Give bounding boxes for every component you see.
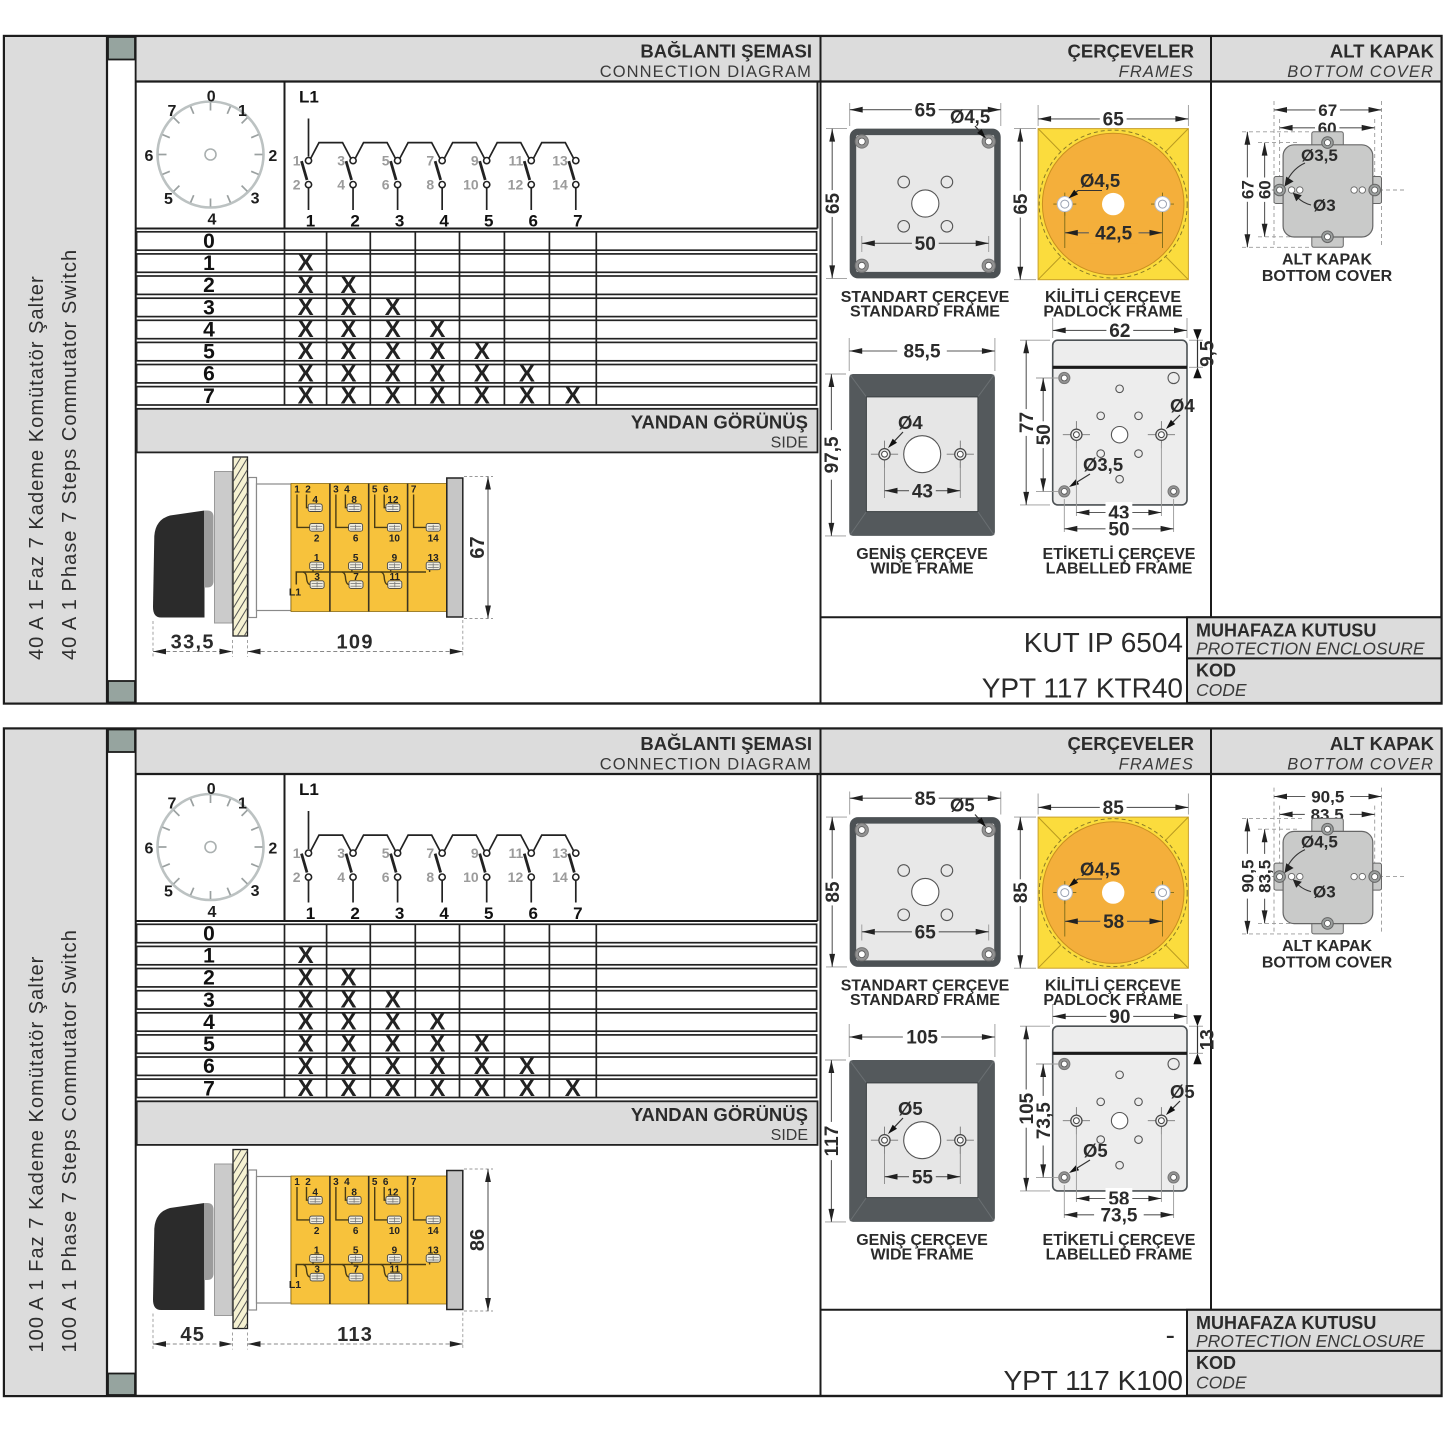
svg-text:Ø5: Ø5 [898, 1098, 923, 1119]
svg-text:10: 10 [463, 177, 479, 193]
svg-text:85: 85 [1011, 882, 1032, 904]
svg-text:7: 7 [411, 1177, 417, 1188]
svg-text:8: 8 [426, 869, 434, 885]
svg-text:1: 1 [293, 153, 301, 169]
svg-text:85,5: 85,5 [904, 342, 941, 363]
svg-text:3: 3 [251, 883, 260, 900]
svg-text:5: 5 [382, 153, 390, 169]
svg-text:ALT KAPAK: ALT KAPAK [1282, 938, 1373, 955]
svg-text:5: 5 [382, 845, 390, 861]
svg-text:73,5: 73,5 [1034, 1102, 1055, 1139]
svg-text:CONNECTION DIAGRAM: CONNECTION DIAGRAM [600, 63, 812, 81]
svg-text:CODE: CODE [1196, 1373, 1247, 1393]
svg-text:X: X [565, 1075, 581, 1102]
svg-text:6: 6 [382, 869, 390, 885]
svg-text:X: X [519, 1075, 535, 1102]
svg-text:7: 7 [167, 796, 176, 813]
svg-text:3: 3 [337, 153, 345, 169]
svg-text:33,5: 33,5 [171, 632, 215, 654]
svg-text:WIDE FRAME: WIDE FRAME [870, 1247, 973, 1264]
svg-text:4: 4 [439, 212, 449, 231]
svg-text:14: 14 [552, 869, 568, 885]
svg-text:13: 13 [552, 153, 568, 169]
svg-text:2: 2 [314, 534, 320, 545]
svg-text:1: 1 [314, 1246, 320, 1257]
svg-text:3: 3 [395, 212, 404, 231]
svg-text:5: 5 [353, 1246, 359, 1257]
svg-text:40 A 1 Phase 7 Steps Commutato: 40 A 1 Phase 7 Steps Commutator Switch [59, 249, 81, 660]
svg-text:62: 62 [1109, 321, 1130, 342]
svg-text:13: 13 [552, 845, 568, 861]
svg-text:10: 10 [389, 1226, 401, 1237]
svg-text:9: 9 [392, 553, 398, 564]
svg-text:14: 14 [552, 177, 568, 193]
svg-text:BOTTOM COVER: BOTTOM COVER [1287, 63, 1434, 81]
svg-text:65: 65 [823, 193, 844, 215]
svg-text:X: X [519, 382, 535, 409]
svg-text:45: 45 [180, 1324, 205, 1346]
svg-text:BOTTOM COVER: BOTTOM COVER [1262, 268, 1393, 285]
svg-text:7: 7 [203, 1077, 215, 1100]
svg-text:67: 67 [1318, 101, 1337, 120]
svg-text:43: 43 [912, 481, 933, 502]
svg-text:5: 5 [372, 1177, 378, 1188]
svg-text:10: 10 [463, 869, 479, 885]
svg-text:97,5: 97,5 [822, 436, 843, 473]
svg-text:10: 10 [389, 534, 401, 545]
svg-text:FRAMES: FRAMES [1119, 756, 1194, 774]
svg-text:11: 11 [508, 845, 523, 861]
svg-text:BOTTOM COVER: BOTTOM COVER [1287, 756, 1434, 774]
svg-text:3: 3 [203, 296, 215, 319]
svg-text:1: 1 [306, 904, 315, 923]
svg-text:5: 5 [353, 553, 359, 564]
svg-text:BAĞLANTI ŞEMASI: BAĞLANTI ŞEMASI [640, 41, 812, 62]
svg-text:85: 85 [1103, 798, 1125, 819]
svg-text:MUHAFAZA KUTUSU: MUHAFAZA KUTUSU [1196, 1313, 1376, 1333]
svg-text:Ø4,5: Ø4,5 [1080, 170, 1120, 191]
svg-text:ÇERÇEVELER: ÇERÇEVELER [1068, 733, 1194, 754]
svg-text:2: 2 [293, 177, 301, 193]
svg-text:2: 2 [305, 1177, 311, 1188]
svg-text:0: 0 [207, 89, 216, 106]
svg-text:7: 7 [426, 845, 434, 861]
svg-text:SIDE: SIDE [771, 1127, 808, 1144]
svg-text:2: 2 [203, 274, 215, 297]
svg-text:4: 4 [439, 904, 449, 923]
svg-text:7: 7 [353, 572, 359, 583]
svg-text:X: X [385, 382, 401, 409]
svg-text:42,5: 42,5 [1095, 224, 1132, 245]
svg-text:PADLOCK FRAME: PADLOCK FRAME [1043, 303, 1183, 320]
svg-text:65: 65 [915, 923, 937, 944]
svg-text:Ø4,5: Ø4,5 [1080, 859, 1120, 880]
svg-text:Ø4: Ø4 [1170, 395, 1195, 416]
svg-text:9,5: 9,5 [1198, 340, 1219, 367]
svg-text:Ø4,5: Ø4,5 [950, 106, 990, 127]
svg-text:5: 5 [203, 341, 215, 364]
svg-text:0: 0 [203, 230, 215, 253]
svg-text:5: 5 [484, 212, 493, 231]
svg-text:3: 3 [395, 904, 404, 923]
svg-text:4: 4 [337, 869, 345, 885]
svg-text:1: 1 [238, 103, 247, 120]
svg-text:65: 65 [1103, 110, 1125, 131]
svg-text:7: 7 [353, 1265, 359, 1276]
svg-text:ÇERÇEVELER: ÇERÇEVELER [1068, 41, 1194, 62]
svg-text:ALT KAPAK: ALT KAPAK [1330, 733, 1435, 754]
svg-text:BAĞLANTI ŞEMASI: BAĞLANTI ŞEMASI [640, 733, 812, 754]
svg-text:13: 13 [1198, 1029, 1219, 1050]
svg-text:ALT KAPAK: ALT KAPAK [1330, 41, 1435, 62]
svg-text:7: 7 [411, 485, 417, 496]
svg-text:90: 90 [1109, 1007, 1130, 1028]
svg-text:3: 3 [337, 845, 345, 861]
svg-text:6: 6 [529, 904, 538, 923]
svg-text:12: 12 [387, 1188, 399, 1199]
svg-text:ALT KAPAK: ALT KAPAK [1282, 251, 1373, 268]
svg-text:85: 85 [915, 789, 937, 810]
svg-text:5: 5 [164, 884, 173, 901]
svg-text:14: 14 [428, 534, 440, 545]
svg-text:1: 1 [238, 796, 247, 813]
svg-text:-: - [1166, 1320, 1175, 1351]
svg-text:PROTECTION ENCLOSURE: PROTECTION ENCLOSURE [1196, 1331, 1425, 1351]
svg-text:X: X [385, 1075, 401, 1102]
svg-text:6: 6 [353, 1226, 359, 1237]
svg-text:1: 1 [314, 553, 320, 564]
svg-text:7: 7 [203, 385, 215, 408]
svg-text:X: X [340, 382, 356, 409]
svg-text:3: 3 [203, 989, 215, 1012]
svg-text:Ø5: Ø5 [1083, 1140, 1108, 1161]
svg-text:3: 3 [314, 1265, 320, 1276]
svg-text:X: X [429, 382, 445, 409]
svg-text:4: 4 [344, 485, 350, 496]
svg-text:2: 2 [293, 869, 301, 885]
svg-text:113: 113 [337, 1324, 373, 1346]
svg-text:4: 4 [312, 495, 318, 506]
svg-text:7: 7 [167, 103, 176, 120]
svg-text:5: 5 [372, 485, 378, 496]
svg-text:4: 4 [203, 1011, 215, 1034]
svg-text:2: 2 [350, 212, 359, 231]
svg-text:KUT IP 6504: KUT IP 6504 [1024, 627, 1183, 658]
svg-text:SIDE: SIDE [771, 435, 808, 452]
svg-text:9: 9 [471, 153, 479, 169]
svg-text:YANDAN GÖRÜNÜŞ: YANDAN GÖRÜNÜŞ [631, 1104, 808, 1125]
svg-text:117: 117 [822, 1126, 843, 1157]
svg-text:65: 65 [915, 100, 937, 121]
svg-text:5: 5 [164, 191, 173, 208]
svg-text:BOTTOM COVER: BOTTOM COVER [1262, 955, 1393, 972]
svg-text:5: 5 [203, 1033, 215, 1056]
svg-text:WIDE FRAME: WIDE FRAME [870, 561, 973, 578]
svg-text:40 A 1 Faz 7 Kademe Komütatör: 40 A 1 Faz 7 Kademe Komütatör Şalter [26, 275, 48, 660]
svg-text:0: 0 [203, 923, 215, 946]
svg-text:3: 3 [314, 572, 320, 583]
svg-text:X: X [474, 1075, 490, 1102]
svg-text:4: 4 [337, 177, 345, 193]
svg-text:2: 2 [305, 485, 311, 496]
svg-text:Ø4,5: Ø4,5 [1301, 833, 1338, 852]
svg-text:Ø3: Ø3 [1313, 196, 1336, 215]
svg-text:L1: L1 [299, 780, 319, 799]
svg-text:6: 6 [353, 534, 359, 545]
svg-text:X: X [429, 1075, 445, 1102]
svg-text:8: 8 [351, 495, 357, 506]
svg-text:100 A 1 Phase 7 Steps Commutat: 100 A 1 Phase 7 Steps Commutator Switch [59, 929, 81, 1352]
svg-text:4: 4 [344, 1177, 350, 1188]
svg-text:1: 1 [203, 945, 215, 968]
svg-text:X: X [298, 1075, 314, 1102]
svg-text:Ø5: Ø5 [1170, 1081, 1195, 1102]
svg-text:50: 50 [915, 234, 936, 255]
svg-text:L1: L1 [289, 587, 301, 599]
svg-text:YPT 117 K100: YPT 117 K100 [1003, 1365, 1183, 1396]
svg-text:L1: L1 [289, 1279, 301, 1291]
svg-text:9: 9 [471, 845, 479, 861]
svg-text:7: 7 [573, 904, 582, 923]
svg-text:7: 7 [426, 153, 434, 169]
svg-text:X: X [474, 382, 490, 409]
svg-text:YANDAN GÖRÜNÜŞ: YANDAN GÖRÜNÜŞ [631, 412, 808, 433]
svg-text:90,5: 90,5 [1311, 788, 1344, 807]
svg-text:KOD: KOD [1196, 1353, 1236, 1373]
svg-text:6: 6 [145, 841, 154, 858]
svg-text:L1: L1 [299, 88, 319, 107]
svg-text:6: 6 [203, 363, 215, 386]
svg-text:85: 85 [823, 881, 844, 903]
svg-text:Ø4: Ø4 [898, 412, 923, 433]
svg-text:X: X [565, 382, 581, 409]
svg-text:90,5: 90,5 [1238, 860, 1257, 893]
svg-text:STANDARD FRAME: STANDARD FRAME [850, 303, 1000, 320]
svg-text:6: 6 [383, 1177, 389, 1188]
svg-text:86: 86 [467, 1229, 489, 1251]
svg-text:PROTECTION ENCLOSURE: PROTECTION ENCLOSURE [1196, 639, 1425, 659]
svg-text:83,5: 83,5 [1256, 860, 1275, 893]
svg-text:3: 3 [333, 485, 339, 496]
svg-text:58: 58 [1103, 912, 1124, 933]
svg-text:2: 2 [203, 967, 215, 990]
svg-text:60: 60 [1256, 180, 1275, 199]
svg-text:13: 13 [428, 1246, 440, 1257]
svg-text:55: 55 [912, 1167, 934, 1188]
svg-text:1: 1 [203, 252, 215, 275]
svg-text:1: 1 [294, 485, 300, 496]
svg-text:5: 5 [484, 904, 493, 923]
svg-text:12: 12 [508, 869, 524, 885]
svg-text:100 A 1 Faz 7 Kademe Komütatör: 100 A 1 Faz 7 Kademe Komütatör Şalter [26, 956, 48, 1353]
svg-text:Ø3: Ø3 [1313, 883, 1336, 902]
svg-text:Ø3,5: Ø3,5 [1083, 454, 1123, 475]
svg-text:11: 11 [508, 153, 523, 169]
svg-text:2: 2 [268, 841, 277, 858]
svg-text:2: 2 [350, 904, 359, 923]
svg-text:4: 4 [203, 319, 215, 342]
svg-text:X: X [298, 382, 314, 409]
svg-text:4: 4 [208, 904, 217, 921]
svg-text:8: 8 [426, 177, 434, 193]
svg-text:STANDARD FRAME: STANDARD FRAME [850, 992, 1000, 1009]
svg-text:YPT 117 KTR40: YPT 117 KTR40 [982, 672, 1183, 703]
svg-text:6: 6 [145, 148, 154, 165]
svg-text:7: 7 [573, 212, 582, 231]
svg-text:12: 12 [387, 495, 399, 506]
svg-text:3: 3 [251, 191, 260, 208]
svg-text:LABELLED FRAME: LABELLED FRAME [1046, 1247, 1193, 1264]
svg-text:6: 6 [382, 177, 390, 193]
svg-text:12: 12 [508, 177, 524, 193]
svg-text:65: 65 [1011, 193, 1032, 215]
svg-text:67: 67 [1238, 180, 1257, 199]
svg-text:9: 9 [392, 1246, 398, 1257]
svg-text:6: 6 [203, 1055, 215, 1078]
svg-text:4: 4 [208, 212, 217, 229]
svg-text:105: 105 [906, 1028, 938, 1049]
svg-text:11: 11 [390, 572, 401, 583]
svg-text:MUHAFAZA KUTUSU: MUHAFAZA KUTUSU [1196, 621, 1376, 641]
svg-text:11: 11 [390, 1265, 401, 1276]
svg-text:6: 6 [529, 212, 538, 231]
svg-text:0: 0 [207, 781, 216, 798]
svg-text:FRAMES: FRAMES [1119, 63, 1194, 81]
svg-text:50: 50 [1034, 424, 1055, 445]
svg-text:50: 50 [1108, 520, 1129, 541]
svg-text:Ø5: Ø5 [950, 795, 975, 816]
svg-text:CODE: CODE [1196, 680, 1247, 700]
svg-text:1: 1 [293, 845, 301, 861]
svg-text:LABELLED FRAME: LABELLED FRAME [1046, 561, 1193, 578]
svg-text:X: X [340, 1075, 356, 1102]
svg-text:4: 4 [312, 1188, 318, 1199]
svg-text:Ø3,5: Ø3,5 [1301, 146, 1338, 165]
svg-text:14: 14 [428, 1226, 440, 1237]
svg-text:CONNECTION DIAGRAM: CONNECTION DIAGRAM [600, 756, 812, 774]
svg-text:6: 6 [383, 485, 389, 496]
svg-text:109: 109 [337, 632, 374, 654]
svg-text:67: 67 [467, 536, 489, 558]
svg-text:KOD: KOD [1196, 661, 1236, 681]
svg-text:2: 2 [268, 148, 277, 165]
svg-text:13: 13 [428, 553, 440, 564]
svg-text:8: 8 [351, 1188, 357, 1199]
svg-text:1: 1 [294, 1177, 300, 1188]
svg-text:1: 1 [306, 212, 315, 231]
svg-text:3: 3 [333, 1177, 339, 1188]
svg-text:73,5: 73,5 [1100, 1206, 1137, 1227]
svg-text:2: 2 [314, 1226, 320, 1237]
